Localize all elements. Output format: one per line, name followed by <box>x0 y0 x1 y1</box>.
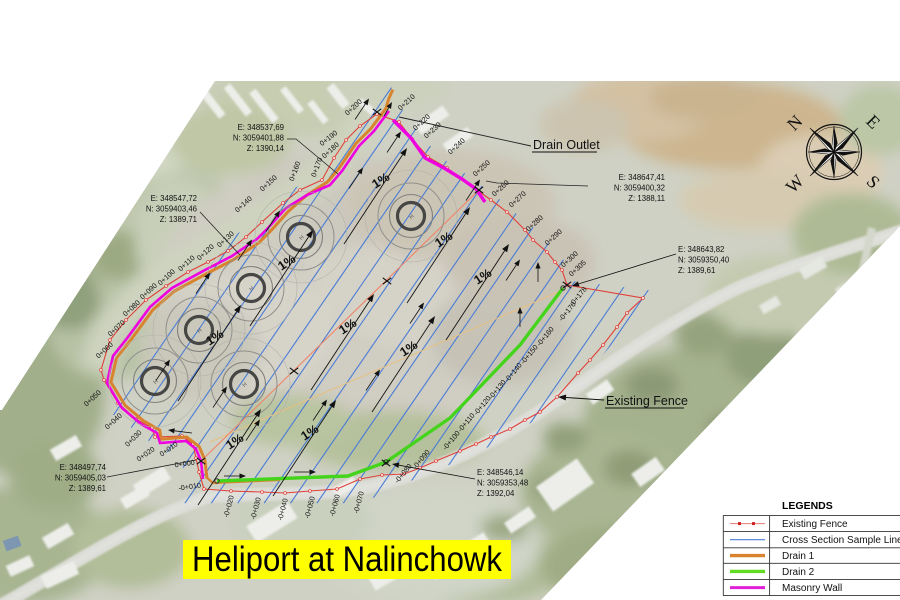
svg-text:Drain Outlet: Drain Outlet <box>533 138 600 152</box>
svg-text:E: 348537,69: E: 348537,69 <box>238 123 284 132</box>
svg-text:N: 3059403,46: N: 3059403,46 <box>146 205 197 214</box>
svg-text:Z: 1389,71: Z: 1389,71 <box>160 215 197 224</box>
svg-text:N: 3059353,48: N: 3059353,48 <box>477 479 528 488</box>
svg-text:E: 348546,14: E: 348546,14 <box>477 468 524 477</box>
svg-text:Z: 1388,11: Z: 1388,11 <box>628 194 665 203</box>
svg-text:Existing Fence: Existing Fence <box>782 519 848 530</box>
svg-text:Cross Section Sample Line: Cross Section Sample Line <box>782 535 900 546</box>
svg-text:E: 348497,74: E: 348497,74 <box>60 463 107 472</box>
svg-text:Drain 2: Drain 2 <box>782 567 815 578</box>
svg-text:Z: 1390,14: Z: 1390,14 <box>247 144 285 153</box>
svg-text:Existing Fence: Existing Fence <box>606 394 688 408</box>
svg-text:Z: 1389,61: Z: 1389,61 <box>69 484 106 493</box>
svg-text:Heliport at Nalinchowk: Heliport at Nalinchowk <box>192 540 502 579</box>
svg-text:Masonry Wall: Masonry Wall <box>782 583 842 594</box>
svg-text:N: 3059400,32: N: 3059400,32 <box>614 184 665 193</box>
svg-text:E: 348647,41: E: 348647,41 <box>619 173 665 182</box>
svg-text:N: 3059405,03: N: 3059405,03 <box>55 474 106 483</box>
svg-text:N: 3059401,88: N: 3059401,88 <box>233 134 284 143</box>
svg-text:N: 3059350,40: N: 3059350,40 <box>678 256 730 265</box>
svg-text:E: 348643,82: E: 348643,82 <box>678 245 724 254</box>
svg-text:E: 348547,72: E: 348547,72 <box>151 194 197 203</box>
svg-text:Z: 1389,61: Z: 1389,61 <box>678 266 715 275</box>
svg-text:LEGENDS: LEGENDS <box>782 500 833 512</box>
svg-text:Z: 1392,04: Z: 1392,04 <box>477 489 515 498</box>
svg-text:Drain 1: Drain 1 <box>782 551 815 562</box>
